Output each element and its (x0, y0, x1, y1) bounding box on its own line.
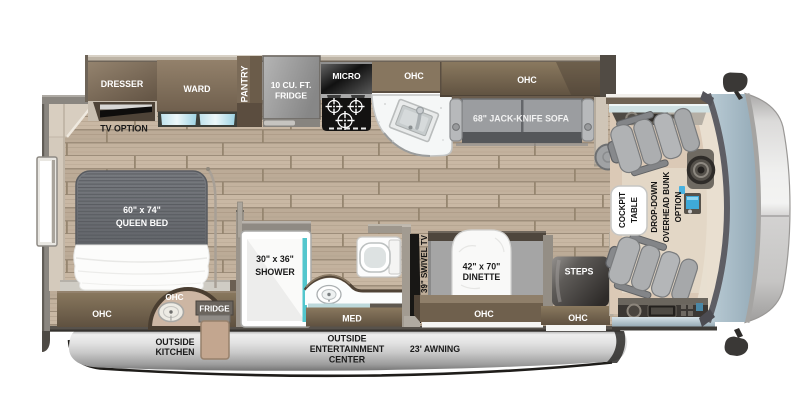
svg-text:TABLE: TABLE (630, 196, 639, 223)
svg-text:42" x 70": 42" x 70" (463, 262, 501, 272)
svg-text:FRIDGE: FRIDGE (275, 91, 307, 101)
svg-text:39" SWIVEL TV: 39" SWIVEL TV (420, 234, 429, 293)
svg-text:OUTSIDE: OUTSIDE (327, 334, 366, 344)
svg-text:WARD: WARD (184, 84, 211, 94)
svg-text:DROP-DOWN: DROP-DOWN (650, 181, 659, 232)
svg-text:CENTER: CENTER (329, 355, 366, 365)
svg-text:30" x 36": 30" x 36" (256, 254, 294, 264)
svg-text:OHC: OHC (517, 75, 537, 85)
svg-text:OPTION: OPTION (674, 191, 683, 222)
svg-text:PANTRY: PANTRY (240, 66, 250, 103)
svg-text:60" x 74": 60" x 74" (123, 205, 161, 215)
svg-text:68" JACK-KNIFE SOFA: 68" JACK-KNIFE SOFA (473, 114, 570, 124)
svg-text:OUTSIDE: OUTSIDE (155, 337, 194, 347)
svg-text:23' AWNING: 23' AWNING (410, 344, 460, 354)
svg-text:STEPS: STEPS (565, 267, 594, 277)
svg-text:SHOWER: SHOWER (255, 267, 295, 277)
svg-text:DRESSER: DRESSER (101, 79, 144, 89)
svg-text:OHC: OHC (92, 309, 112, 319)
svg-text:OHC: OHC (165, 293, 183, 302)
svg-text:OVERHEAD BUNK: OVERHEAD BUNK (662, 171, 671, 242)
svg-text:10 CU. FT.: 10 CU. FT. (271, 80, 312, 90)
svg-text:TV OPTION: TV OPTION (100, 124, 147, 134)
svg-text:QUEEN BED: QUEEN BED (116, 218, 168, 228)
svg-text:KITCHEN: KITCHEN (155, 347, 194, 357)
svg-text:OHC: OHC (474, 309, 494, 319)
svg-text:OHC: OHC (568, 313, 588, 323)
svg-text:DINETTE: DINETTE (463, 272, 501, 282)
svg-text:ENTERTAINMENT: ENTERTAINMENT (310, 344, 385, 354)
svg-text:OHC: OHC (404, 71, 424, 81)
svg-text:MED: MED (342, 314, 362, 324)
svg-text:MICRO: MICRO (332, 71, 361, 81)
svg-text:FRIDGE: FRIDGE (199, 305, 230, 314)
svg-text:COCKPIT: COCKPIT (618, 192, 627, 228)
